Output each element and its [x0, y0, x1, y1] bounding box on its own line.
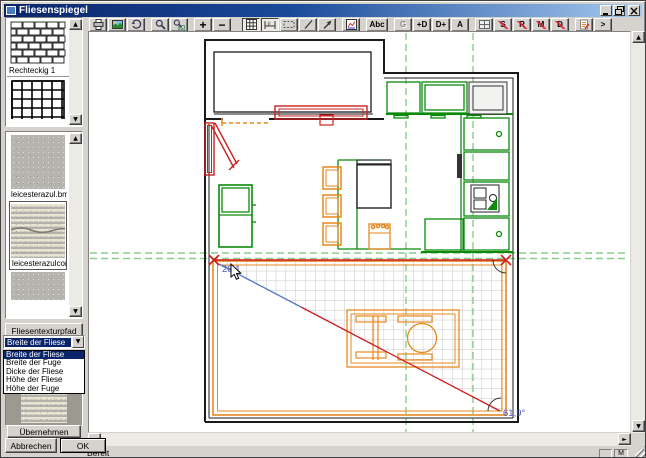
title-bar[interactable]: Fliesenspiegel [4, 4, 642, 17]
scroll-down-icon[interactable]: ▼ [632, 420, 645, 432]
note-icon [579, 19, 590, 30]
resize-grip[interactable] [635, 449, 646, 458]
diagonal-arrow-icon [322, 19, 333, 30]
brick-pattern-preview [10, 21, 66, 65]
pattern-item-rechteckig[interactable]: Rechteckig 1 [7, 21, 69, 76]
dimension-toggle-button[interactable]: µ [261, 18, 279, 32]
grid-toggle-button[interactable] [242, 18, 260, 32]
status-panel-indicator: M [614, 449, 628, 458]
image-export-button[interactable] [108, 18, 126, 32]
window-layout-button[interactable] [475, 18, 493, 32]
cancel-button[interactable]: Abbrechen [5, 438, 57, 453]
ok-button[interactable]: OK [60, 438, 106, 453]
texture-wave [11, 226, 65, 234]
magnifier-text-icon: aΩ [173, 19, 185, 30]
texture-preview [11, 135, 65, 189]
print-button[interactable] [89, 18, 107, 32]
selected-texture-preview [5, 389, 83, 426]
angle-end-label: 61,9° [503, 408, 525, 419]
chevron-down-icon[interactable]: ▼ [72, 336, 84, 348]
close-button[interactable] [628, 5, 640, 16]
grid-icon [246, 19, 257, 30]
image-icon [112, 19, 123, 30]
app-icon [6, 6, 16, 15]
apply-button[interactable]: Übernehmen [7, 425, 81, 438]
scrollbar-corner [631, 433, 646, 446]
restore-icon [615, 6, 624, 15]
minimize-icon [602, 7, 610, 15]
chart-icon [346, 19, 357, 30]
horizontal-scrollbar[interactable]: ◄ ► [88, 433, 631, 446]
toggle-d-button[interactable]: D [551, 18, 569, 32]
kitchen-appliances [357, 82, 507, 212]
texture-item-leicesterazul[interactable]: leicesterazul.bmp [9, 135, 67, 200]
texture-list: leicesterazul.bmp leicesterazulcorte.bmp… [5, 131, 83, 319]
pattern-item-label: Rechteckig 1 [7, 65, 69, 76]
scroll-up-icon[interactable]: ▲ [69, 133, 82, 144]
minimize-button[interactable] [600, 5, 612, 16]
fliesenspiegel-window: Fliesenspiegel [0, 0, 646, 458]
texture-preview [21, 392, 67, 423]
scroll-up-icon[interactable]: ▲ [69, 19, 82, 30]
g-tool-button[interactable]: G [394, 18, 412, 32]
zoom-text-button[interactable]: aΩ [170, 18, 188, 32]
combobox-value: Breite der Fliese [5, 338, 71, 347]
text-tool-button[interactable]: Abc [366, 18, 388, 32]
texture-list-scrollbar[interactable]: ▲ ▼ [69, 133, 82, 317]
window-title: Fliesenspiegel [19, 5, 600, 17]
more-tools-button[interactable]: > [594, 18, 612, 32]
grid-pattern-preview [10, 79, 66, 119]
red-slash-icon [535, 21, 547, 29]
main-toolbar: aΩ + − µ [87, 17, 645, 32]
scroll-down-icon[interactable]: ▼ [69, 306, 82, 317]
texture-item-leicesterazulcorte[interactable]: leicesterazulcorte.bmp [9, 201, 67, 270]
toggle-r-button[interactable]: R [513, 18, 531, 32]
texture-preview [11, 272, 65, 300]
a-tool-button[interactable]: A [451, 18, 469, 32]
toggle-s-button[interactable]: S [494, 18, 512, 32]
window-grid-icon [479, 19, 490, 30]
slash-line-icon [303, 19, 314, 30]
droplist-item[interactable]: Höhe der Fuge [4, 385, 84, 393]
texture-item-label: leicesterazul.bmp [9, 189, 67, 200]
pattern-item-grid[interactable] [7, 76, 69, 119]
toggle-m-button[interactable]: M [532, 18, 550, 32]
status-panel-empty [599, 449, 612, 458]
tile-property-combobox[interactable]: Breite der Fliese ▼ [3, 335, 85, 349]
close-icon [630, 7, 638, 15]
texture-preview-selected [11, 204, 65, 258]
tile-property-droplist: Breite der Fliese Breite der Fuge Dicke … [3, 350, 85, 394]
undo-button[interactable] [127, 18, 145, 32]
undo-icon [131, 19, 142, 30]
vertical-scrollbar[interactable]: ▲ ▼ [631, 31, 646, 433]
add-dimension-button[interactable]: +D [413, 18, 431, 32]
texture-item-label: leicesterazulcorte.bmp [10, 258, 66, 269]
red-slash-icon [497, 21, 509, 29]
remove-dimension-button[interactable]: D+ [432, 18, 450, 32]
pattern-list-scrollbar[interactable]: ▲ ▼ [69, 19, 82, 125]
dimension-line-icon: µ [264, 19, 276, 30]
line-tool-button[interactable] [299, 18, 317, 32]
dashed-lines-button[interactable] [280, 18, 298, 32]
magnifier-icon [155, 19, 166, 30]
floor-plan: 28,1 61,9° [89, 32, 630, 432]
tile-sidebar: Rechteckig 1 ▲ ▼ [1, 17, 87, 447]
printer-icon [93, 19, 104, 30]
zoom-out-button[interactable]: − [213, 18, 231, 32]
scroll-down-icon[interactable]: ▼ [69, 114, 82, 125]
svg-text:aΩ: aΩ [178, 26, 186, 31]
notes-button[interactable] [575, 18, 593, 32]
restore-button[interactable] [613, 5, 625, 16]
red-slash-icon [554, 21, 566, 29]
dashed-rect-icon [283, 19, 295, 30]
arrow-tool-button[interactable] [318, 18, 336, 32]
zoom-button[interactable] [151, 18, 169, 32]
pattern-list: Rechteckig 1 ▲ ▼ [5, 17, 83, 127]
guide-lines [90, 33, 629, 432]
texture-item-partial[interactable] [9, 272, 67, 300]
scroll-up-icon[interactable]: ▲ [632, 31, 645, 43]
red-slash-icon [516, 21, 528, 29]
zoom-in-button[interactable]: + [194, 18, 212, 32]
chart-view-button[interactable] [342, 18, 360, 32]
scroll-right-icon[interactable]: ► [618, 433, 631, 445]
